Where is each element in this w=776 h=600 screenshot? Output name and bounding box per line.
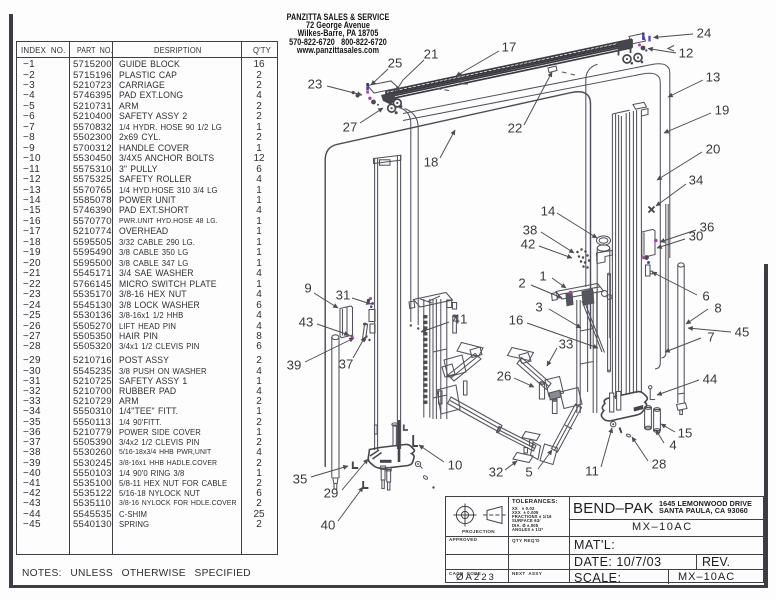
svg-text:15: 15 (678, 426, 693, 441)
svg-text:35: 35 (293, 472, 308, 487)
svg-text:6: 6 (702, 289, 709, 304)
svg-text:20: 20 (706, 142, 721, 157)
svg-text:31: 31 (336, 288, 351, 303)
svg-text:4: 4 (669, 438, 676, 453)
svg-text:43: 43 (299, 315, 314, 330)
svg-text:32: 32 (489, 465, 504, 480)
svg-text:26: 26 (497, 369, 512, 384)
svg-text:7: 7 (707, 330, 714, 345)
svg-text:21: 21 (424, 47, 439, 62)
svg-text:25: 25 (388, 56, 403, 71)
svg-text:18: 18 (424, 155, 439, 170)
svg-text:12: 12 (679, 46, 694, 61)
svg-text:9: 9 (304, 281, 311, 296)
svg-text:14: 14 (541, 204, 556, 219)
svg-text:37: 37 (339, 357, 354, 372)
svg-text:38: 38 (523, 223, 538, 238)
svg-text:30: 30 (689, 229, 704, 244)
svg-text:11: 11 (585, 464, 599, 479)
svg-text:5: 5 (525, 465, 532, 480)
svg-text:40: 40 (321, 518, 336, 533)
svg-text:45: 45 (735, 325, 750, 340)
svg-text:8: 8 (714, 301, 721, 316)
svg-text:27: 27 (343, 120, 358, 135)
svg-text:19: 19 (715, 103, 730, 118)
svg-text:2: 2 (518, 276, 525, 291)
svg-text:22: 22 (508, 121, 523, 136)
svg-text:39: 39 (287, 358, 302, 373)
svg-text:28: 28 (652, 457, 667, 472)
svg-text:1: 1 (539, 269, 546, 284)
svg-text:24: 24 (697, 26, 712, 41)
svg-text:3: 3 (535, 300, 542, 315)
svg-text:41: 41 (453, 312, 468, 327)
svg-text:34: 34 (689, 173, 704, 188)
svg-text:10: 10 (448, 458, 463, 473)
svg-text:44: 44 (703, 372, 718, 387)
svg-text:16: 16 (509, 313, 524, 328)
svg-text:23: 23 (308, 77, 323, 92)
svg-text:42: 42 (521, 237, 536, 252)
svg-text:13: 13 (706, 70, 721, 85)
svg-text:29: 29 (324, 486, 339, 501)
svg-text:17: 17 (502, 40, 517, 55)
